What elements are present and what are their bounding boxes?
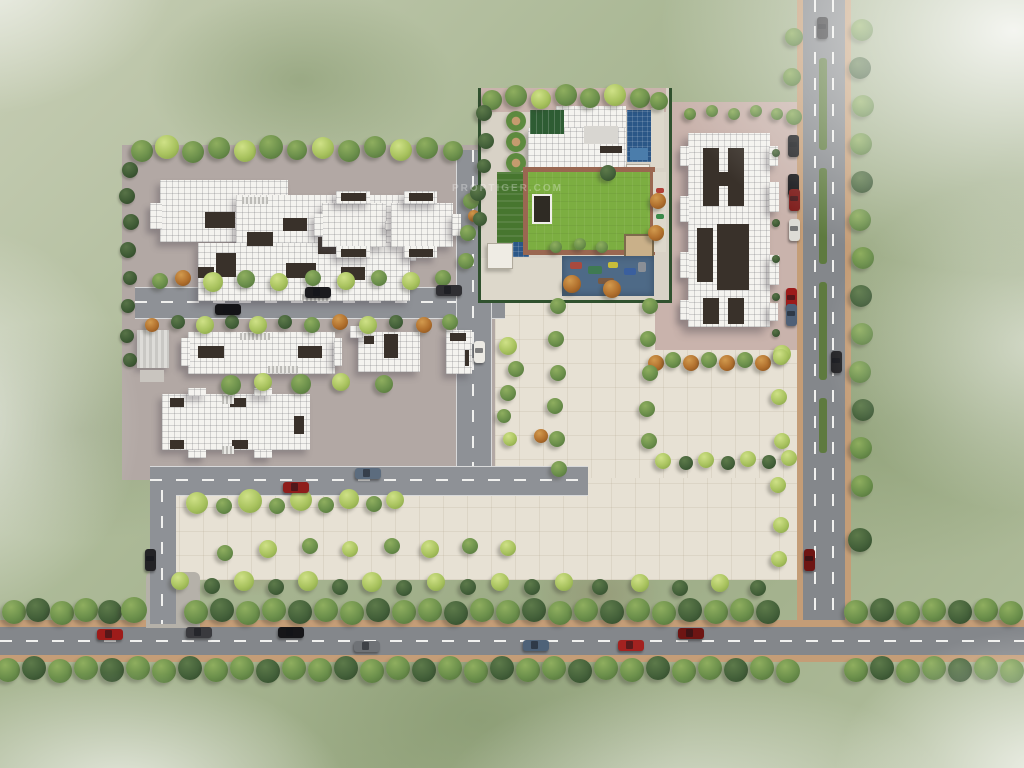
tree	[750, 105, 762, 117]
tree	[204, 658, 228, 682]
water-feature	[532, 194, 552, 224]
roof-cutout	[728, 298, 744, 324]
seating-circle	[506, 132, 526, 152]
tree	[640, 331, 656, 347]
road-median	[819, 58, 827, 150]
tree	[435, 270, 451, 286]
tree	[74, 656, 98, 680]
shrub	[121, 299, 135, 313]
shrub	[772, 293, 780, 301]
row-building-south-tab	[188, 450, 206, 458]
tree	[548, 331, 564, 347]
tree	[630, 88, 650, 108]
tree	[204, 578, 220, 594]
tree	[785, 28, 803, 46]
roof-cutout	[384, 334, 398, 358]
tree	[269, 498, 285, 514]
tree	[771, 389, 787, 405]
tree	[672, 580, 688, 596]
autumn-tree	[175, 270, 191, 286]
tree	[848, 528, 872, 552]
tree	[849, 361, 871, 383]
tree	[750, 580, 766, 596]
autumn-tree	[332, 314, 348, 330]
tree	[386, 656, 410, 680]
tree	[48, 659, 72, 683]
row-building-south-tab	[188, 388, 206, 396]
tree	[460, 225, 476, 241]
tree	[555, 84, 577, 106]
tree	[464, 659, 488, 683]
tree	[851, 475, 873, 497]
apartment-building-a-wing	[150, 203, 162, 229]
twin-building-west	[322, 203, 386, 247]
car-windshield	[223, 305, 230, 312]
right-road-curb-east	[845, 0, 851, 620]
tree	[184, 600, 208, 624]
tree	[852, 95, 874, 117]
tower-wing	[769, 303, 778, 321]
play-equipment	[638, 262, 646, 272]
center-line	[150, 479, 588, 481]
tree	[642, 365, 658, 381]
stair-shaft	[222, 446, 234, 454]
tree	[551, 461, 567, 477]
roof-cutout	[283, 218, 307, 231]
shrub	[772, 219, 780, 227]
car-windshield	[313, 288, 320, 295]
tree	[442, 314, 458, 330]
play-equipment	[624, 268, 636, 275]
tree	[850, 285, 872, 307]
roof-cutout	[717, 224, 749, 290]
car	[678, 628, 704, 639]
tree	[646, 656, 670, 680]
row-building-north-cap	[334, 338, 342, 366]
tree	[237, 270, 255, 288]
tree	[781, 450, 797, 466]
tree	[210, 598, 234, 622]
tree	[672, 659, 696, 683]
tree	[850, 437, 872, 459]
tower-wing	[769, 182, 779, 212]
tree	[974, 598, 998, 622]
tree	[870, 598, 894, 622]
car	[804, 549, 815, 571]
tree	[549, 431, 565, 447]
shrub	[123, 214, 139, 230]
tree	[490, 656, 514, 680]
car-windshield	[105, 630, 112, 637]
tree	[339, 489, 359, 509]
car-windshield	[787, 311, 794, 317]
tree	[359, 316, 377, 334]
tree	[182, 141, 204, 163]
tree	[342, 541, 358, 557]
tower-wing	[680, 300, 689, 320]
tree	[131, 140, 153, 162]
tree	[786, 109, 802, 125]
tree	[308, 658, 332, 682]
tree	[249, 316, 267, 334]
tree	[236, 601, 260, 625]
tree	[771, 108, 783, 120]
pool-step	[630, 148, 648, 160]
tree	[851, 19, 873, 41]
car	[305, 287, 331, 298]
tree	[531, 89, 551, 109]
autumn-tree	[145, 318, 159, 332]
center-line	[161, 490, 163, 624]
car-windshield	[789, 142, 796, 148]
tree	[870, 656, 894, 680]
lane-line	[832, 0, 834, 655]
twin-building-east	[391, 203, 453, 247]
tree	[706, 105, 718, 117]
tree	[568, 659, 592, 683]
tree	[626, 598, 650, 622]
tree	[302, 538, 318, 554]
tree	[701, 352, 717, 368]
tree	[371, 270, 387, 286]
garden-plot	[530, 110, 564, 134]
roof-cutout	[298, 346, 322, 358]
tree	[225, 315, 239, 329]
tree	[418, 598, 442, 622]
tree	[337, 272, 355, 290]
car-windshield	[790, 196, 797, 202]
tree	[444, 601, 468, 625]
car	[789, 219, 800, 241]
tree	[477, 159, 491, 173]
seating-circle	[506, 111, 526, 131]
shrub	[123, 353, 137, 367]
tree	[500, 385, 516, 401]
tree	[574, 598, 598, 622]
tree	[238, 489, 262, 513]
tree	[774, 433, 790, 449]
play-equipment	[588, 266, 602, 274]
car-windshield	[787, 295, 794, 301]
tree	[287, 140, 307, 160]
stair-shaft	[222, 396, 234, 404]
tree	[392, 600, 416, 624]
tree	[783, 68, 801, 86]
car	[474, 341, 485, 363]
tree	[516, 658, 540, 682]
roof-cutout	[170, 398, 184, 407]
tree	[476, 105, 492, 121]
car-windshield	[832, 358, 839, 364]
tree	[389, 315, 403, 329]
tree	[254, 373, 272, 391]
tree	[851, 323, 873, 345]
row-building-south-tab	[254, 450, 272, 458]
car	[789, 189, 800, 211]
road-median	[819, 282, 827, 380]
car	[278, 627, 304, 638]
car	[355, 468, 381, 479]
tree	[196, 316, 214, 334]
tree	[478, 133, 494, 149]
tree	[592, 579, 608, 595]
tree	[750, 656, 774, 680]
car-windshield	[790, 226, 797, 232]
tree	[458, 253, 474, 269]
roof-cutout	[409, 193, 433, 201]
tree	[171, 315, 185, 329]
tree	[684, 108, 696, 120]
tree	[773, 349, 789, 365]
tree	[208, 137, 230, 159]
shrub	[772, 329, 780, 337]
car	[788, 135, 799, 157]
tree	[555, 573, 573, 591]
tree	[771, 551, 787, 567]
tree	[221, 375, 241, 395]
tree	[548, 601, 572, 625]
tree	[270, 273, 288, 291]
tree	[650, 92, 668, 110]
tree	[298, 571, 318, 591]
township-site-plan-rendering: PROPTIGER.COM	[0, 0, 1024, 768]
tree	[600, 600, 624, 624]
tree	[730, 598, 754, 622]
tree	[470, 598, 494, 622]
autumn-tree	[650, 193, 666, 209]
tree	[740, 451, 756, 467]
tree	[100, 658, 124, 682]
roof-cutout	[232, 440, 248, 449]
tree	[234, 140, 256, 162]
roof-cutout	[728, 148, 744, 206]
shrub	[123, 271, 137, 285]
tree	[550, 241, 562, 253]
tree	[852, 399, 874, 421]
tree	[652, 601, 676, 625]
utility-pad	[140, 370, 164, 382]
tree	[844, 658, 868, 682]
tree	[724, 658, 748, 682]
road-median	[819, 398, 827, 453]
autumn-tree	[683, 355, 699, 371]
tree	[412, 658, 436, 682]
tree	[74, 598, 98, 622]
tree	[402, 272, 420, 290]
road-median	[819, 168, 827, 264]
utility-building	[137, 330, 169, 368]
tree	[503, 432, 517, 446]
tree	[508, 361, 524, 377]
tree	[844, 600, 868, 624]
tree	[278, 315, 292, 329]
car-windshield	[805, 556, 812, 562]
tree	[462, 538, 478, 554]
tree	[491, 573, 509, 591]
tree	[773, 517, 789, 533]
play-equipment	[608, 262, 618, 268]
autumn-tree	[755, 355, 771, 371]
tree	[152, 659, 176, 683]
tree	[259, 135, 283, 159]
tree	[318, 497, 334, 513]
tree	[852, 247, 874, 269]
tree	[291, 374, 311, 394]
car	[436, 285, 462, 296]
tree	[186, 492, 208, 514]
play-equipment	[570, 262, 582, 269]
tree	[216, 498, 232, 514]
tree	[596, 241, 608, 253]
tree	[338, 140, 360, 162]
car-windshield	[444, 286, 451, 293]
car-windshield	[362, 642, 369, 649]
tree	[698, 656, 722, 680]
tree	[496, 600, 520, 624]
play-equipment	[656, 214, 664, 219]
tree	[396, 580, 412, 596]
tree	[2, 600, 26, 624]
car	[97, 629, 123, 640]
tree	[443, 141, 463, 161]
roof-cutout	[719, 172, 729, 186]
car-windshield	[531, 641, 538, 648]
roof-cutout	[409, 249, 433, 257]
car	[523, 640, 549, 651]
car	[283, 482, 309, 493]
tree	[384, 538, 400, 554]
tree	[550, 298, 566, 314]
tree	[1000, 659, 1024, 683]
stair-shaft	[242, 197, 268, 204]
tree	[550, 365, 566, 381]
car	[215, 304, 241, 315]
tree	[896, 601, 920, 625]
car	[618, 640, 644, 651]
tree	[922, 598, 946, 622]
tree	[282, 656, 306, 680]
tree	[500, 540, 516, 556]
autumn-tree	[719, 355, 735, 371]
shrub	[119, 188, 135, 204]
car-windshield	[146, 556, 153, 562]
autumn-tree	[648, 225, 664, 241]
tree	[312, 137, 334, 159]
car-windshield	[818, 24, 825, 30]
roof-cutout	[465, 350, 469, 366]
tree	[704, 600, 728, 624]
tower-wing	[680, 196, 689, 222]
car-windshield	[286, 628, 293, 635]
tree	[360, 659, 384, 683]
roof-cutout	[450, 333, 466, 341]
roof-cutout	[205, 212, 235, 228]
tree	[641, 433, 657, 449]
shrub	[120, 242, 136, 258]
center-line	[135, 301, 505, 303]
shrub	[120, 329, 134, 343]
tree	[922, 656, 946, 680]
tree	[497, 409, 511, 423]
car	[831, 351, 842, 373]
car	[817, 17, 828, 39]
tree	[642, 298, 658, 314]
car-windshield	[686, 629, 693, 636]
car-windshield	[626, 641, 633, 648]
tree	[604, 84, 626, 106]
tree	[678, 598, 702, 622]
car-windshield	[363, 469, 370, 476]
clubhouse-courtyard	[584, 126, 618, 144]
tree	[665, 352, 681, 368]
tree	[234, 571, 254, 591]
garden-pavilion	[487, 243, 513, 269]
tree	[721, 456, 735, 470]
tree	[262, 598, 286, 622]
tower-wing	[680, 146, 689, 166]
car-windshield	[194, 628, 201, 635]
tree	[600, 165, 616, 181]
car	[145, 549, 156, 571]
tree	[574, 238, 586, 250]
tree	[999, 601, 1023, 625]
tree	[390, 139, 412, 161]
tree	[421, 540, 439, 558]
tree	[121, 597, 147, 623]
tree	[386, 491, 404, 509]
car	[186, 627, 212, 638]
tree	[203, 272, 223, 292]
car-windshield	[291, 483, 298, 490]
tree	[776, 659, 800, 683]
tree	[948, 658, 972, 682]
tree	[620, 658, 644, 682]
tree	[362, 572, 382, 592]
shrub	[772, 149, 780, 157]
tree	[332, 373, 350, 391]
tree	[26, 598, 50, 622]
tree	[256, 659, 280, 683]
tree	[499, 337, 517, 355]
tree	[366, 496, 382, 512]
tree	[737, 352, 753, 368]
roof-cutout	[170, 440, 184, 449]
tree	[679, 456, 693, 470]
tree	[217, 545, 233, 561]
tree	[230, 656, 254, 680]
stair-shaft	[240, 333, 270, 340]
car-windshield	[789, 181, 796, 187]
tree	[524, 579, 540, 595]
tree	[896, 659, 920, 683]
tree	[155, 135, 179, 159]
roof-cutout	[198, 346, 224, 358]
shrub	[122, 162, 138, 178]
tree	[849, 57, 871, 79]
tree	[770, 477, 786, 493]
tree	[178, 656, 202, 680]
car	[786, 304, 797, 326]
tree	[268, 579, 284, 595]
tree	[850, 133, 872, 155]
tree	[639, 401, 655, 417]
tree	[522, 598, 546, 622]
tree	[547, 398, 563, 414]
autumn-tree	[416, 317, 432, 333]
shrub	[772, 255, 780, 263]
car-windshield	[475, 348, 482, 354]
tree	[366, 598, 390, 622]
